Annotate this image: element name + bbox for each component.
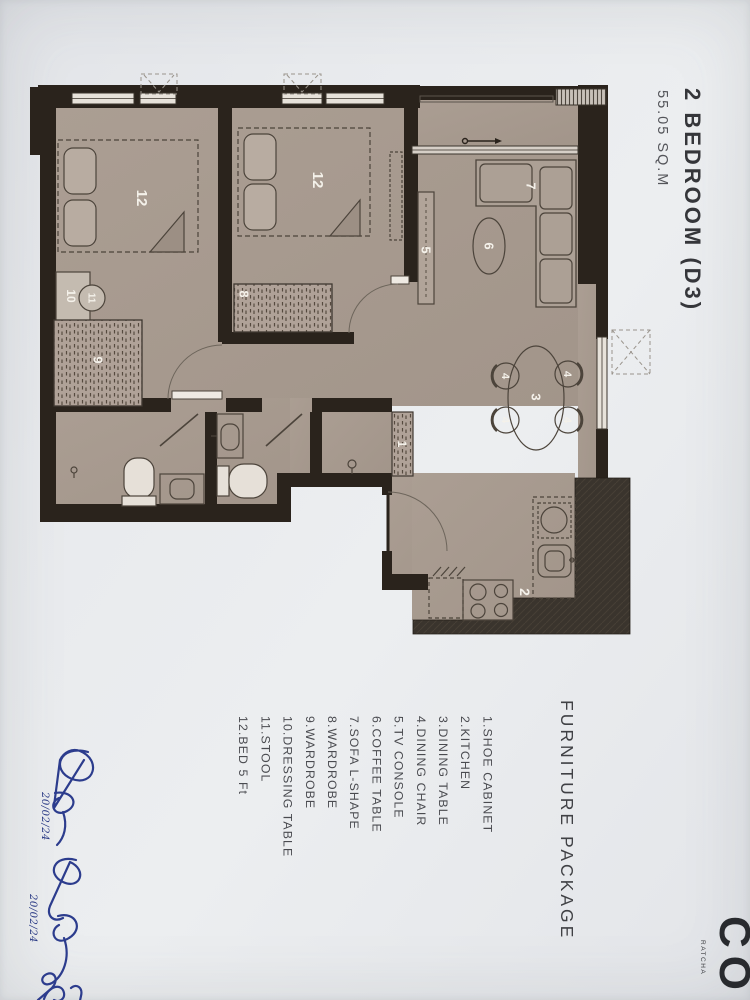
unit-area: 55.05 SQ.M	[654, 90, 670, 187]
list-item: 6.COFFEE TABLE	[365, 716, 387, 1000]
room-marker-bed1: 12	[133, 190, 150, 207]
room-marker-bed2: 12	[309, 172, 326, 189]
scanned-floorplan-page: 12 12 5 6 7 3 4 4 4 4 1 2 8 9 10 11	[0, 0, 750, 1000]
louver-vent	[556, 89, 606, 105]
room-marker-chair-4: 4	[561, 417, 573, 424]
signature-2	[38, 859, 80, 1000]
room-marker-chair-3: 4	[499, 417, 511, 424]
brand-logo: CO	[712, 916, 750, 998]
room-marker-dressing-table: 10	[64, 289, 78, 303]
furniture-package-heading: FURNITURE PACKAGE	[556, 700, 577, 940]
list-item: 4.DINING CHAIR	[410, 716, 432, 1000]
room-marker-chair-1: 4	[499, 373, 511, 380]
signature-1	[53, 750, 93, 845]
brand-logo-subtext: RATCHA	[699, 940, 706, 975]
list-item: 8.WARDROBE	[321, 716, 343, 1000]
list-item: 9.WARDROBE	[299, 716, 321, 1000]
room-marker-wardrobe-8: 8	[236, 290, 251, 297]
unit-type-title: 2 BEDROOM (D3)	[679, 88, 705, 312]
signature-3-partial	[44, 986, 81, 1000]
list-item: 7.SOFA L-SHAPE	[343, 716, 365, 1000]
room-marker-shoe-cabinet: 1	[395, 441, 409, 448]
room-marker-chair-2: 4	[561, 371, 573, 378]
room-marker-tv-console: 5	[418, 246, 433, 253]
list-item: 2.KITCHEN	[454, 716, 476, 1000]
signature-date-1: 20/02/24	[39, 791, 50, 841]
signature-date-2: 20/02/24	[27, 893, 38, 943]
list-item: 11.STOOL	[254, 716, 276, 1000]
room-marker-stool: 11	[86, 293, 97, 304]
list-item: 3.DINING TABLE	[432, 716, 454, 1000]
room-marker-kitchen: 2	[517, 588, 533, 596]
list-item: 1.SHOE CABINET	[476, 716, 498, 1000]
room-marker-coffee-table: 6	[481, 242, 496, 249]
room-marker-dining-table: 3	[528, 393, 543, 400]
room-marker-wardrobe-9: 9	[90, 356, 105, 363]
room-marker-sofa: 7	[523, 182, 538, 189]
list-item: 12.BED 5 Ft	[232, 716, 254, 1000]
list-item: 5.TV CONSOLE	[387, 716, 409, 1000]
list-item: 10.DRESSING TABLE	[276, 716, 298, 1000]
furniture-package-list: 1.SHOE CABINET 2.KITCHEN 3.DINING TABLE …	[232, 716, 498, 1000]
